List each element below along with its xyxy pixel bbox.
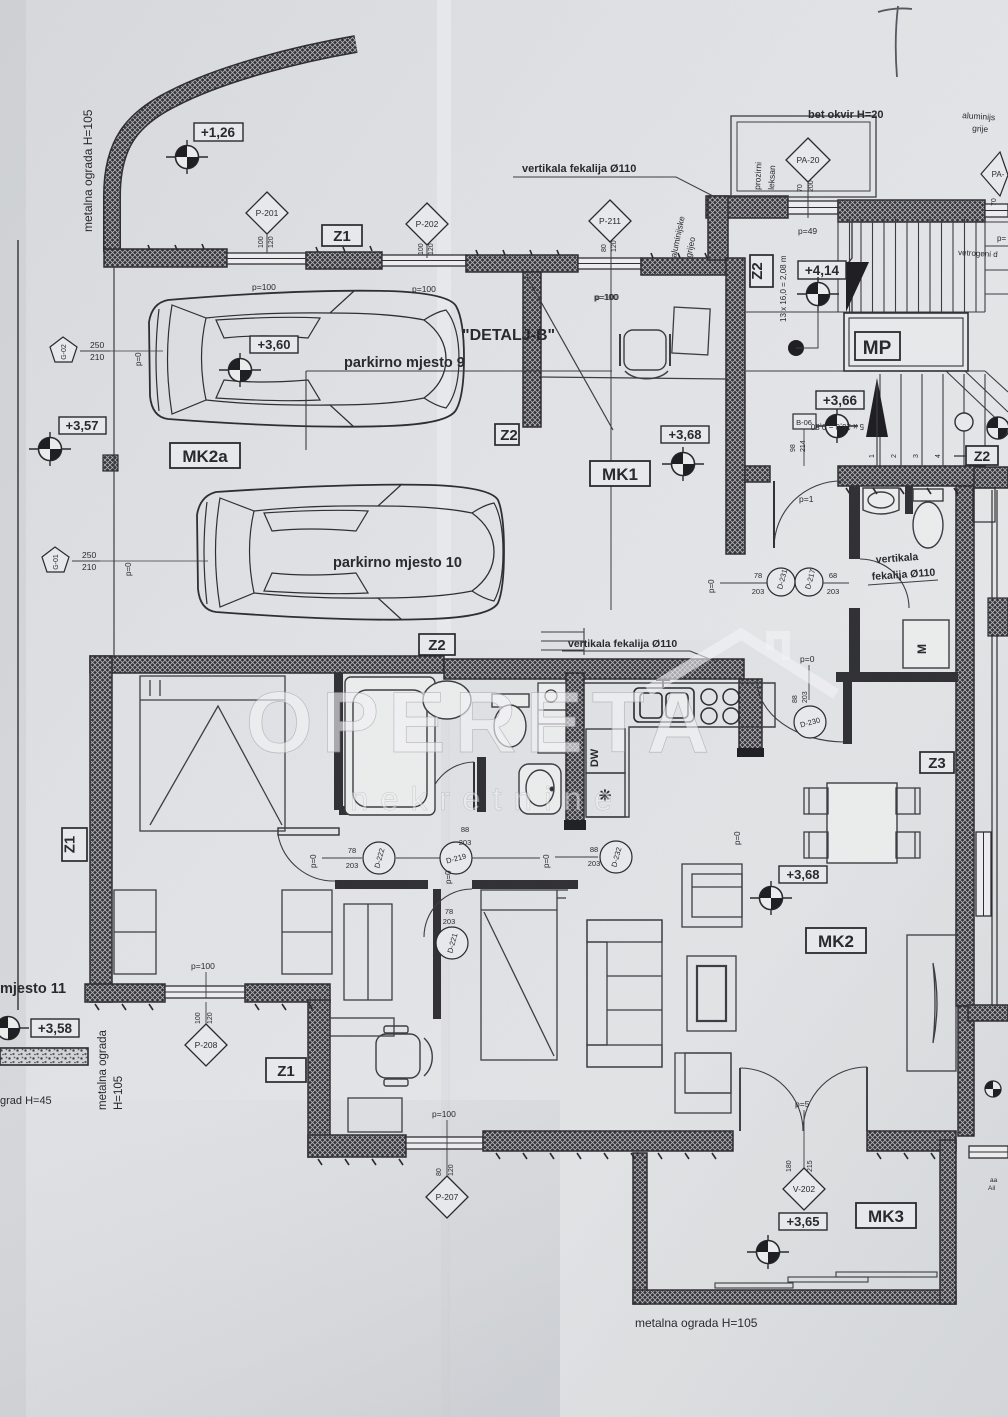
svg-text:OPERETA: OPERETA — [246, 675, 718, 771]
svg-text:nekretnine: nekretnine — [350, 780, 624, 817]
